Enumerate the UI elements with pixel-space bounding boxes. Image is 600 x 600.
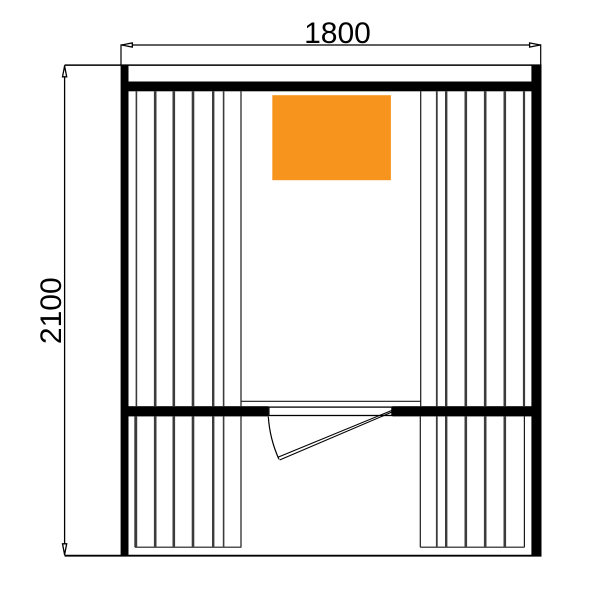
svg-text:2100: 2100 [35,277,68,344]
